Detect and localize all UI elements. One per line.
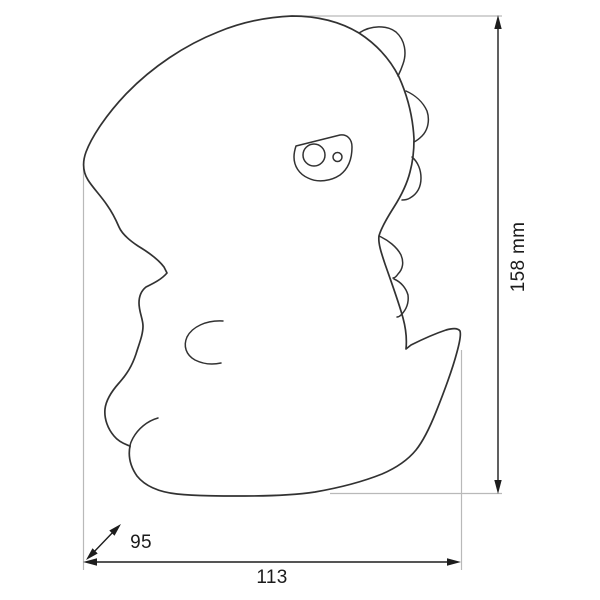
depth-dimension-arrow — [86, 524, 121, 560]
arrow-right-icon — [447, 558, 461, 565]
depth-dimension-label: 95 — [130, 532, 152, 554]
back-spike-2 — [406, 91, 428, 142]
width-dimension-line — [83, 558, 461, 565]
arrow-down-icon — [494, 480, 501, 494]
technical-drawing: 158 mm 113 95 — [0, 0, 600, 600]
arrow-up-icon — [494, 15, 501, 29]
dinosaur-outline — [84, 16, 461, 496]
eye-small-circle — [333, 153, 342, 162]
height-dimension-label: 158 mm — [508, 222, 530, 292]
arm-curve — [185, 321, 223, 364]
drawing-canvas — [0, 0, 600, 600]
foot-curve — [130, 418, 158, 447]
height-dimension-line — [494, 15, 501, 494]
arrow-left-icon — [83, 558, 97, 565]
width-dimension-label: 113 — [256, 567, 287, 589]
eye-circle — [303, 144, 325, 166]
